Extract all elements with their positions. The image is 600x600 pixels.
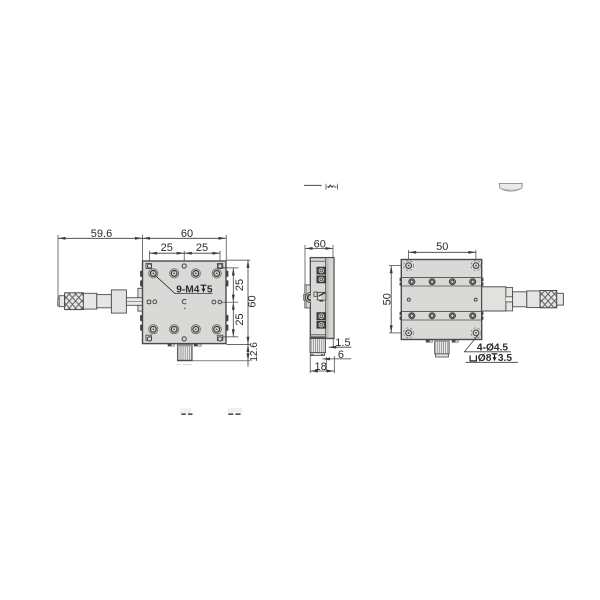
svg-text:9-M4: 9-M4	[176, 284, 200, 295]
svg-text:25: 25	[234, 313, 246, 325]
svg-text:25: 25	[234, 279, 246, 291]
svg-text:4-Ø4.5: 4-Ø4.5	[477, 342, 508, 353]
svg-text:12.6: 12.6	[249, 342, 260, 362]
svg-text:50: 50	[436, 241, 448, 253]
svg-text:60: 60	[246, 295, 258, 307]
svg-text:25: 25	[196, 242, 208, 254]
svg-text:50: 50	[382, 293, 394, 305]
svg-text:18: 18	[314, 361, 326, 373]
svg-text:1.5: 1.5	[335, 337, 350, 349]
svg-text:3.5: 3.5	[498, 353, 512, 364]
svg-text:Ø8: Ø8	[478, 353, 492, 364]
svg-text:6: 6	[338, 349, 344, 361]
svg-text:25: 25	[161, 242, 173, 254]
svg-text:5: 5	[207, 284, 213, 295]
